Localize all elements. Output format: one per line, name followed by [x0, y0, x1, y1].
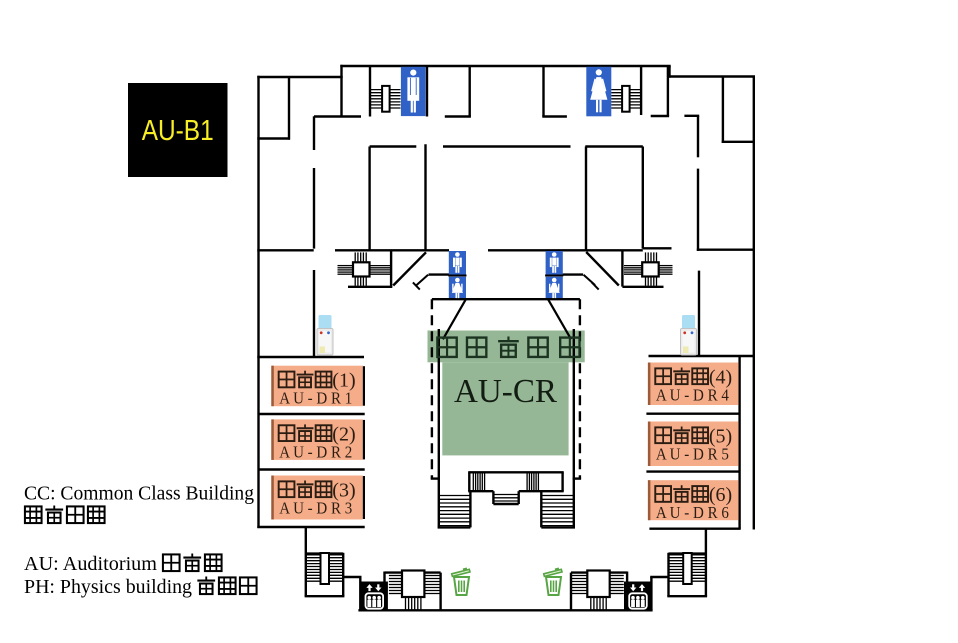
svg-text:A U - D R 4: A U - D R 4	[656, 386, 729, 405]
svg-text:AU-B1: AU-B1	[142, 115, 214, 147]
svg-text:A U - D R 5: A U - D R 5	[656, 445, 729, 464]
svg-text:A U - D R 6: A U - D R 6	[656, 503, 729, 522]
svg-text:A U - D R 1: A U - D R 1	[279, 389, 352, 408]
svg-text:CC: Common Class Building: CC: Common Class Building	[24, 483, 254, 505]
svg-text:AU: Auditorium: AU: Auditorium	[24, 553, 157, 575]
svg-text:A U - D R 2: A U - D R 2	[279, 442, 352, 461]
svg-text:AU-CR: AU-CR	[454, 373, 557, 410]
svg-text:A U - D R 3: A U - D R 3	[279, 499, 352, 518]
svg-text:PH: Physics building: PH: Physics building	[24, 576, 192, 598]
